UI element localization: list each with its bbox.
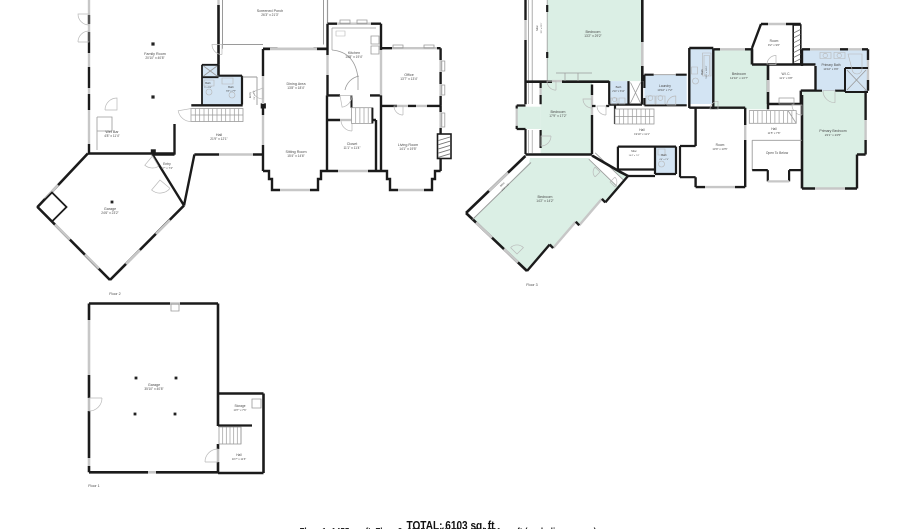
svg-text:11'5" x 7'8": 11'5" x 7'8" bbox=[768, 131, 781, 135]
svg-text:6'7" x 7'4": 6'7" x 7'4" bbox=[161, 166, 173, 170]
svg-text:3'1" x 7'5": 3'1" x 7'5" bbox=[254, 90, 256, 100]
svg-text:Floor 3: Floor 3 bbox=[526, 283, 537, 287]
svg-text:Entry: Entry bbox=[248, 91, 252, 98]
svg-text:Storage: Storage bbox=[235, 404, 246, 408]
svg-text:Bath: Bath bbox=[700, 69, 704, 75]
svg-text:4'6" x 7'4": 4'6" x 7'4" bbox=[659, 159, 669, 161]
svg-text:11'1" x 9'8": 11'1" x 9'8" bbox=[779, 76, 793, 80]
svg-text:Bath: Bath bbox=[228, 85, 234, 89]
svg-text:14'2" x 14'2": 14'2" x 14'2" bbox=[536, 199, 553, 203]
svg-text:5'10" x 11'10": 5'10" x 11'10" bbox=[706, 65, 708, 78]
svg-text:10'7" x 7'6": 10'7" x 7'6" bbox=[233, 408, 246, 412]
svg-text:7'8" x 7'7": 7'8" x 7'7" bbox=[226, 91, 236, 93]
svg-text:35'10" x 40'8": 35'10" x 40'8" bbox=[144, 387, 163, 391]
svg-text:Bath: Bath bbox=[616, 85, 622, 89]
svg-text:13'2" x 29'2": 13'2" x 29'2" bbox=[584, 34, 601, 38]
svg-text:4'8" x 11'4": 4'8" x 11'4" bbox=[104, 134, 119, 138]
svg-text:13'9" x 13'5": 13'9" x 13'5" bbox=[712, 147, 727, 151]
svg-text:20'10" x 40'8": 20'10" x 40'8" bbox=[145, 56, 164, 60]
svg-text:Hall: Hall bbox=[236, 453, 242, 457]
svg-text:3'6" x 22'1": 3'6" x 22'1" bbox=[541, 22, 543, 33]
svg-text:10'7" x 11'3": 10'7" x 11'3" bbox=[232, 457, 246, 461]
svg-text:14'8" x 19'4": 14'8" x 19'4" bbox=[345, 55, 362, 59]
svg-text:2'10" x 5'10": 2'10" x 5'10" bbox=[612, 91, 625, 93]
svg-text:21'9" x 12'1": 21'9" x 12'1" bbox=[210, 137, 227, 141]
svg-text:Misc: Misc bbox=[631, 149, 637, 153]
svg-text:Bath: Bath bbox=[205, 81, 211, 85]
svg-text:10'10" x 7'2": 10'10" x 7'2" bbox=[657, 88, 672, 92]
svg-text:Bath: Bath bbox=[661, 153, 667, 157]
svg-text:9'2" x 9'6": 9'2" x 9'6" bbox=[768, 43, 780, 47]
svg-text:13'8" x 18'4": 13'8" x 18'4" bbox=[287, 86, 304, 90]
svg-text:5' x 9'6": 5' x 9'6" bbox=[204, 87, 212, 89]
svg-text:23'1" x 23'5": 23'1" x 23'5" bbox=[825, 133, 841, 137]
svg-text:Hall: Hall bbox=[639, 128, 645, 132]
svg-text:14'1" x 19'5": 14'1" x 19'5" bbox=[399, 147, 416, 151]
svg-text:26'3" x 21'3": 26'3" x 21'3" bbox=[261, 13, 278, 17]
svg-text:Floor 2: Floor 2 bbox=[109, 292, 120, 296]
svg-text:13'7" x 13'4": 13'7" x 13'4" bbox=[400, 77, 417, 81]
svg-text:Open To Below: Open To Below bbox=[766, 151, 789, 155]
svg-text:14'10" x 9'9": 14'10" x 9'9" bbox=[823, 67, 838, 71]
svg-text:19'10" x 11'1": 19'10" x 11'1" bbox=[634, 132, 650, 136]
svg-text:11'1" x 11'4": 11'1" x 11'4" bbox=[343, 146, 360, 150]
svg-text:Misc: Misc bbox=[535, 25, 539, 31]
svg-text:17'9" x 17'2": 17'9" x 17'2" bbox=[549, 114, 566, 118]
svg-text:12'10" x 13'7": 12'10" x 13'7" bbox=[730, 76, 748, 80]
svg-text:24'6" x 23'2": 24'6" x 23'2" bbox=[101, 211, 118, 215]
svg-text:Hall: Hall bbox=[771, 127, 777, 131]
svg-text:Floor 1: Floor 1 bbox=[88, 484, 99, 488]
svg-text:15'4" x 14'6": 15'4" x 14'6" bbox=[287, 154, 304, 158]
svg-text:10'4" x 7'4": 10'4" x 7'4" bbox=[629, 155, 640, 157]
